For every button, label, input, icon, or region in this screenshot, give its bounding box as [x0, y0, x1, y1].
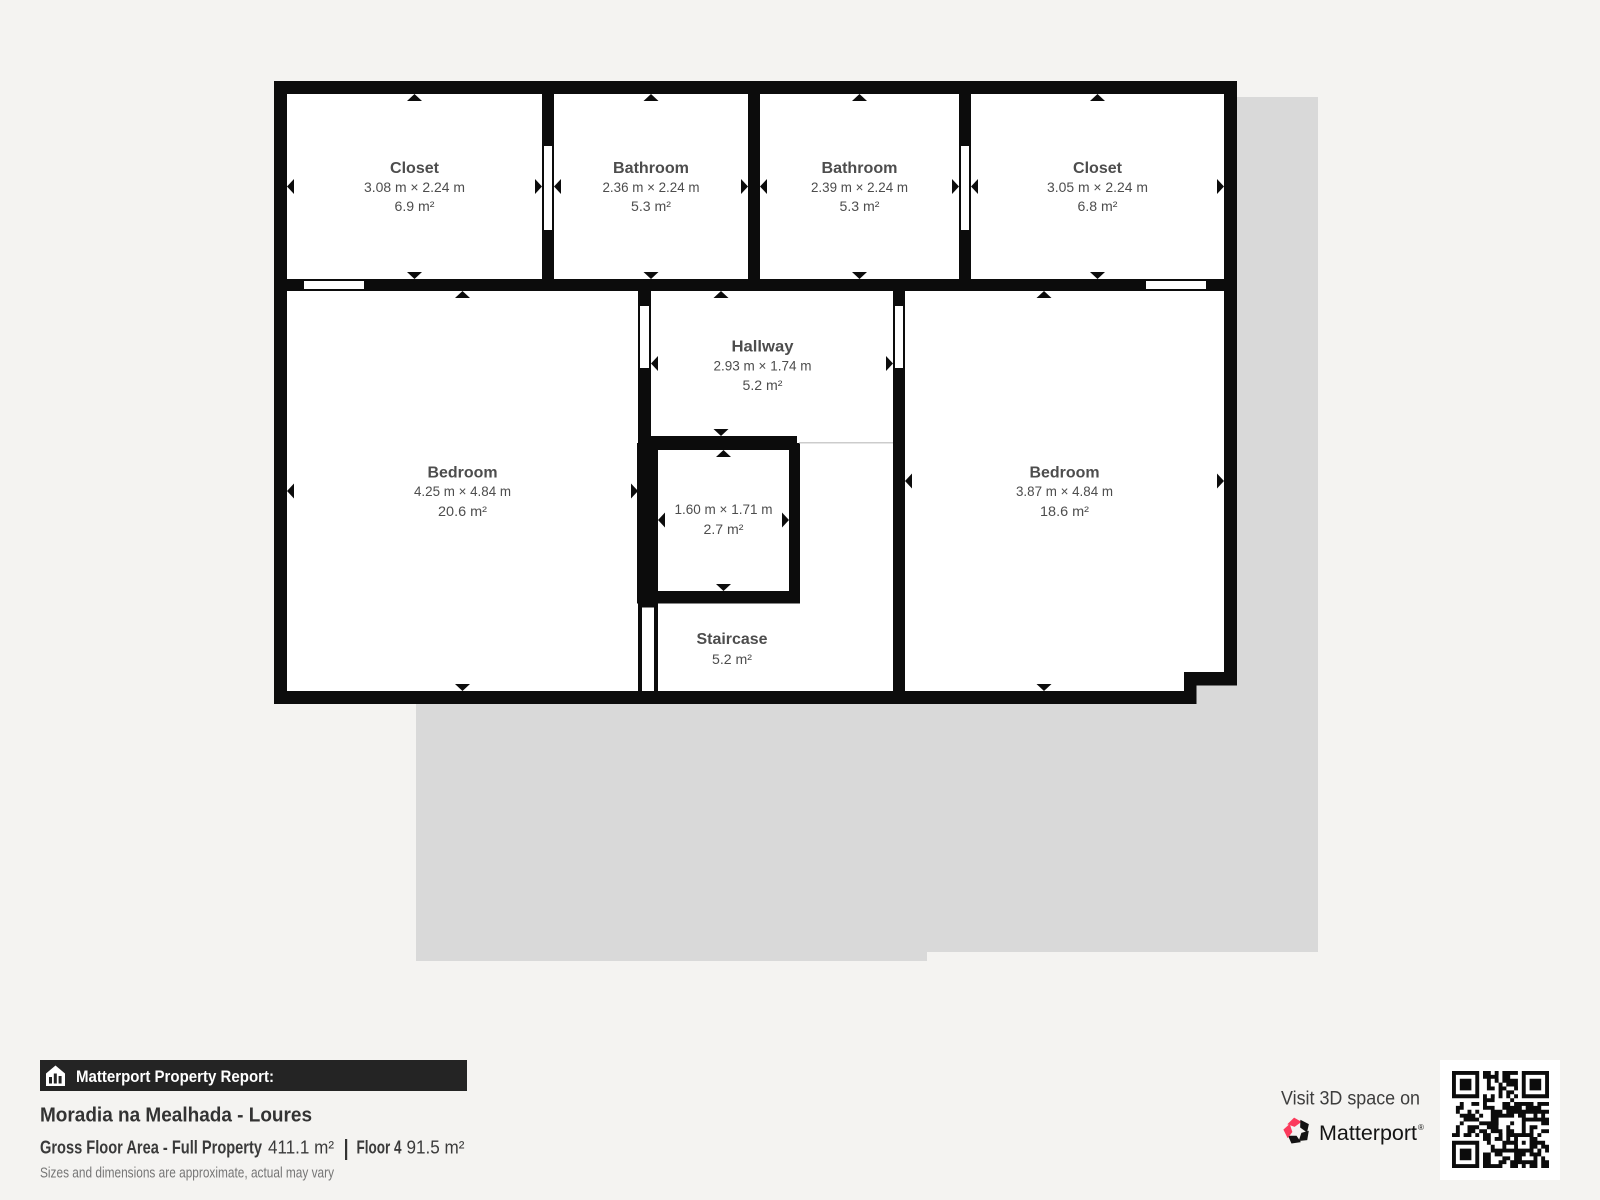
svg-text:20.6 m²: 20.6 m²	[438, 503, 487, 519]
svg-text:5.3 m²: 5.3 m²	[631, 198, 671, 214]
svg-text:4.25 m × 4.84 m: 4.25 m × 4.84 m	[414, 483, 511, 499]
svg-text:Bedroom: Bedroom	[428, 465, 498, 482]
svg-text:6.9 m²: 6.9 m²	[395, 198, 435, 214]
svg-text:5.2 m²: 5.2 m²	[712, 651, 752, 667]
svg-text:Staircase: Staircase	[697, 631, 768, 648]
svg-text:5.3 m²: 5.3 m²	[840, 198, 880, 214]
svg-text:2.36 m × 2.24 m: 2.36 m × 2.24 m	[603, 179, 700, 195]
svg-text:Closet: Closet	[390, 160, 440, 177]
svg-text:Visit 3D space on: Visit 3D space on	[1281, 1089, 1420, 1110]
svg-text:®: ®	[1418, 1123, 1424, 1132]
svg-text:Matterport Property Report:: Matterport Property Report:	[76, 1067, 274, 1086]
svg-text:Gross Floor Area - Full Proper: Gross Floor Area - Full Property	[40, 1138, 262, 1158]
svg-text:Floor 4: Floor 4	[357, 1138, 402, 1158]
svg-text:Bathroom: Bathroom	[822, 160, 898, 177]
svg-text:Sizes and dimensions are appro: Sizes and dimensions are approximate, ac…	[40, 1165, 334, 1182]
svg-text:3.08 m × 2.24 m: 3.08 m × 2.24 m	[364, 179, 465, 195]
svg-text:2.93 m × 1.74 m: 2.93 m × 1.74 m	[714, 358, 812, 374]
svg-text:2.39 m × 2.24 m: 2.39 m × 2.24 m	[811, 179, 908, 195]
svg-text:5.2 m²: 5.2 m²	[743, 377, 783, 393]
svg-text:Bedroom: Bedroom	[1030, 465, 1100, 482]
svg-text:Matterport: Matterport	[1319, 1122, 1417, 1145]
svg-text:Bathroom: Bathroom	[613, 160, 689, 177]
svg-text:Moradia na Mealhada - Loures: Moradia na Mealhada - Loures	[40, 1105, 312, 1127]
svg-text:3.87 m × 4.84 m: 3.87 m × 4.84 m	[1016, 483, 1113, 499]
svg-text:2.7 m²: 2.7 m²	[704, 521, 744, 537]
svg-text:18.6 m²: 18.6 m²	[1040, 503, 1089, 519]
svg-text:6.8 m²: 6.8 m²	[1078, 198, 1118, 214]
svg-text:91.5 m²: 91.5 m²	[407, 1138, 465, 1158]
svg-text:1.60 m × 1.71 m: 1.60 m × 1.71 m	[675, 501, 773, 517]
svg-text:Closet: Closet	[1073, 160, 1123, 177]
svg-text:411.1 m²: 411.1 m²	[268, 1138, 334, 1158]
svg-text:3.05 m × 2.24 m: 3.05 m × 2.24 m	[1047, 179, 1148, 195]
svg-text:Hallway: Hallway	[732, 339, 794, 356]
